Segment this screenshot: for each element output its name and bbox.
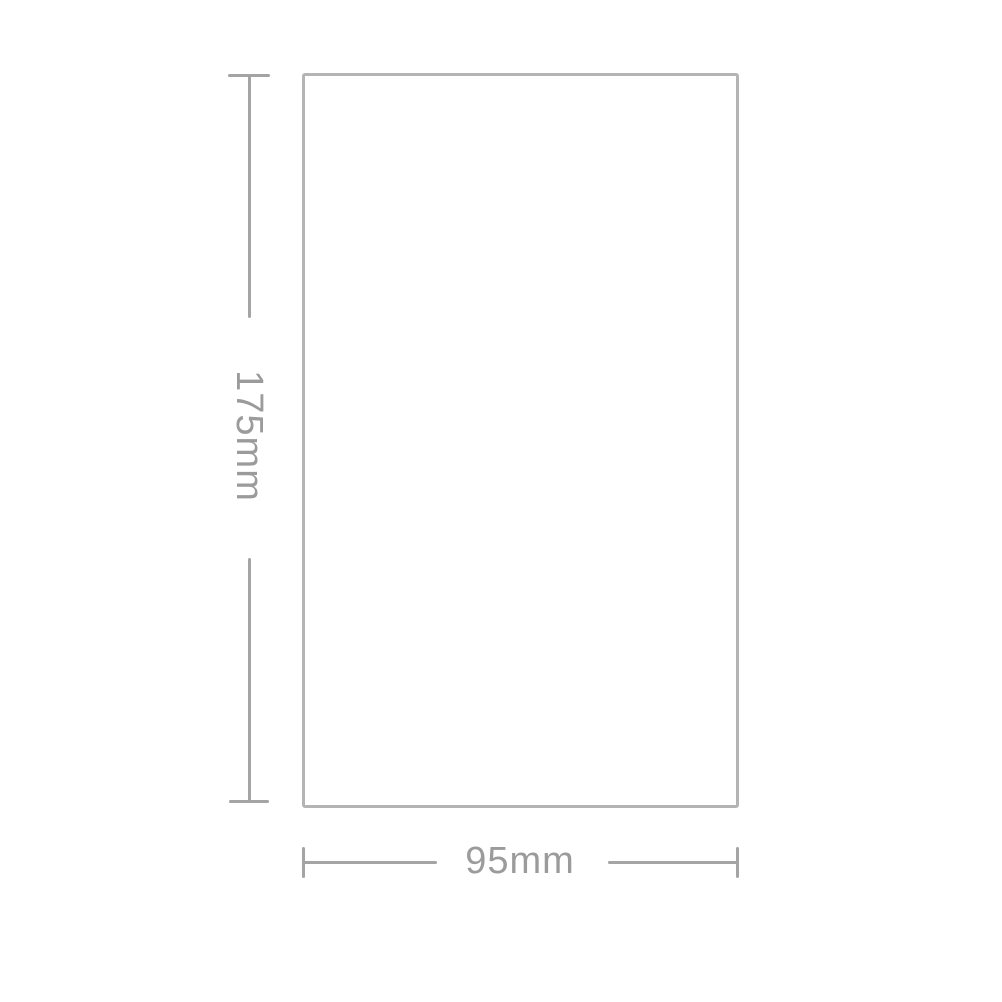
width-dimension-label: 95mm [420,839,620,883]
height-dimension-label: 175mm [227,336,271,536]
height-dimension-tick-bottom [229,800,269,803]
product-outline-rectangle [302,73,739,808]
height-dimension-line-upper [248,76,251,318]
width-dimension-line-left [304,861,437,864]
height-dimension-line-lower [248,558,251,803]
width-dimension-tick-right [736,847,739,878]
width-dimension-line-right [608,861,738,864]
dimension-diagram: 175mm 95mm [0,0,1002,1002]
